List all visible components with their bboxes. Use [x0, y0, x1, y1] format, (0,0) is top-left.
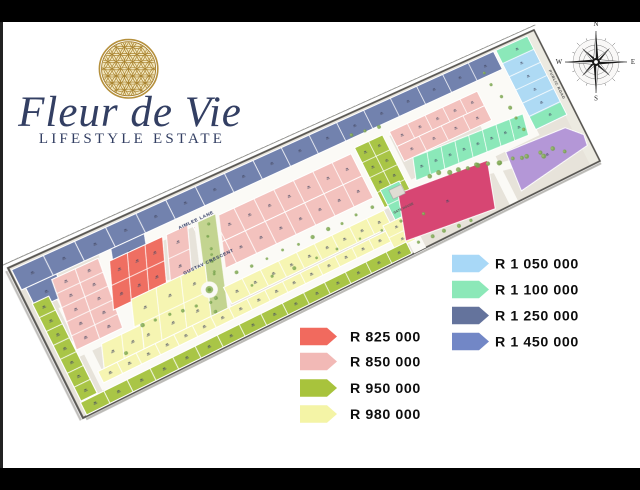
svg-text:W: W	[556, 59, 563, 66]
svg-text:E: E	[631, 59, 635, 66]
svg-text:R 825 000: R 825 000	[350, 330, 421, 346]
svg-text:S: S	[594, 96, 598, 103]
svg-text:R 1 100 000: R 1 100 000	[495, 283, 579, 299]
svg-text:R 950 000: R 950 000	[350, 381, 421, 397]
svg-text:R 1 050 000: R 1 050 000	[495, 257, 579, 273]
svg-text:R 1 450 000: R 1 450 000	[495, 335, 579, 351]
svg-text:R 1 250 000: R 1 250 000	[495, 309, 579, 325]
svg-text:R 850 000: R 850 000	[350, 355, 421, 371]
svg-text:N: N	[594, 21, 599, 28]
svg-text:R 980 000: R 980 000	[350, 407, 421, 423]
